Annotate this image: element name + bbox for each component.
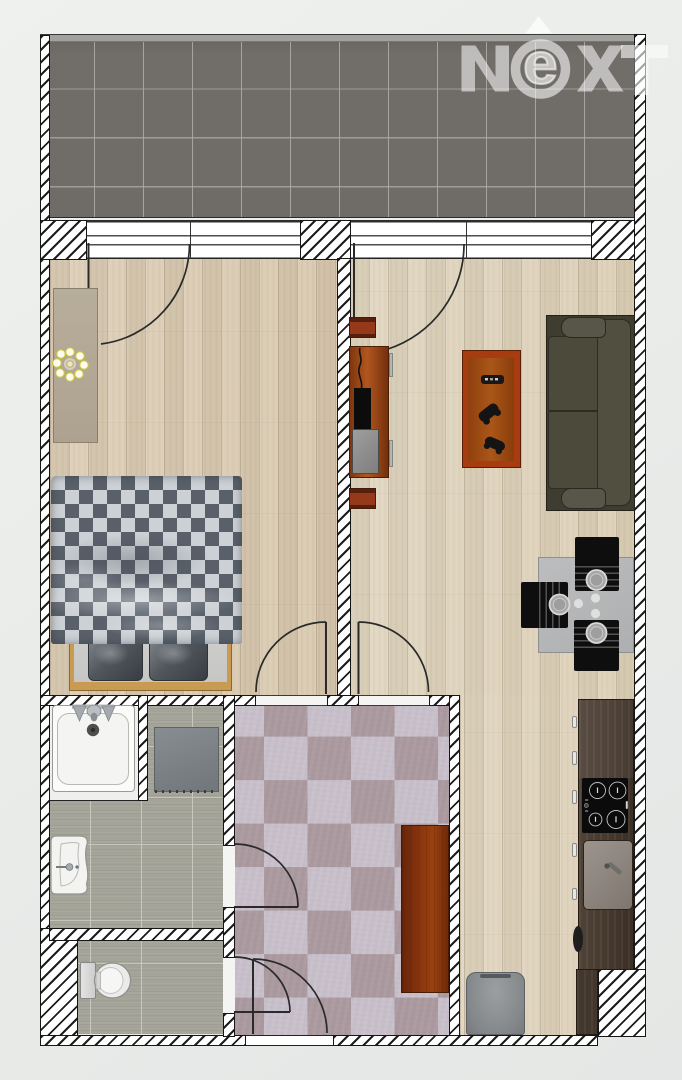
svg-text:e: e	[523, 30, 558, 96]
